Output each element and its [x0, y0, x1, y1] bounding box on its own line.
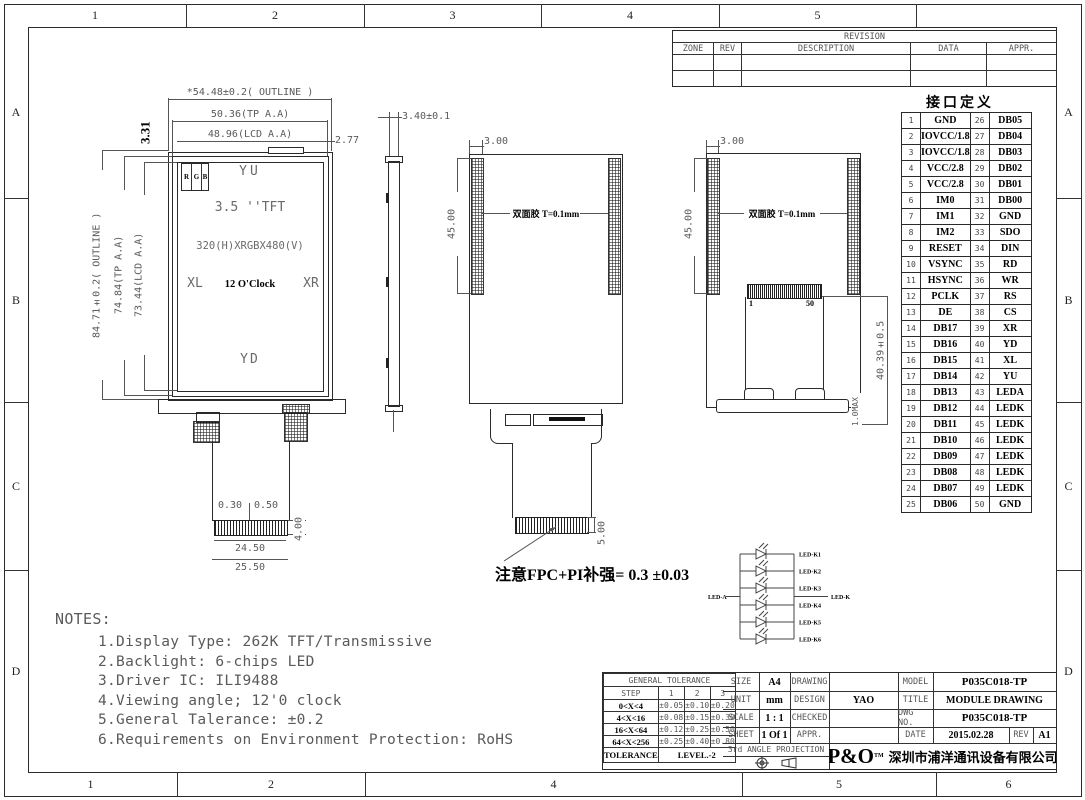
tolerance-value: ±0.08	[658, 712, 684, 724]
pin-name: IM0	[921, 193, 971, 209]
date-value: 2015.02.28	[933, 727, 1010, 744]
revision-col-zone: ZONE	[673, 43, 714, 54]
unit-value: mm	[759, 691, 791, 710]
back-a-gold-fingers	[515, 517, 589, 534]
zone-label: 4	[541, 4, 720, 27]
back-b-dim-top: 3.00	[720, 136, 744, 147]
leader-line	[820, 213, 847, 214]
zone-label: 5	[742, 772, 937, 796]
pin-name: DB06	[921, 497, 971, 513]
general-tolerance-table: GENERAL TOLERANCESTEP1230<X<4±0.05±0.10±…	[603, 673, 736, 763]
pin-row: 7IM132GND	[902, 209, 1032, 225]
pin-name: XR	[989, 321, 1031, 337]
ext-line	[144, 390, 177, 391]
pin-number: 41	[970, 353, 989, 369]
pin-number: 23	[902, 465, 921, 481]
dim-tp-width: 50.36(TP A.A)	[172, 109, 328, 120]
projection-symbols	[723, 756, 830, 769]
pin-number: 9	[902, 241, 921, 257]
notes-title: NOTES:	[55, 610, 111, 628]
pin-name: IM2	[921, 225, 971, 241]
pin-name: GND	[921, 113, 971, 129]
pin-name: DB01	[989, 177, 1031, 193]
tolerance-header: 2	[684, 687, 710, 700]
ext-line	[389, 112, 390, 156]
drawing-label: DRAWING	[790, 673, 830, 692]
rev-label: REV	[1009, 727, 1034, 744]
pin-name: DB11	[921, 417, 971, 433]
dim-line	[212, 559, 288, 560]
side-view-tick	[386, 358, 389, 368]
pin-number: 2	[902, 129, 921, 145]
led-k-label: LED-K2	[799, 570, 821, 576]
pin-row: 10VSYNC35RD	[902, 257, 1032, 273]
pin-row: 24DB0749LEDK	[902, 481, 1032, 497]
pin-name: GND	[989, 209, 1031, 225]
zone-label: B	[4, 198, 28, 403]
dwg-no-value: P035C018-TP	[933, 709, 1056, 728]
pin-number: 40	[970, 337, 989, 353]
back-b-bottom-bar	[716, 399, 849, 413]
pin-name: DB09	[921, 449, 971, 465]
pin-table: 1GND26DB052IOVCC/1.827DB043IOVCC/1.828DB…	[901, 112, 1032, 513]
tolerance-footer-label: TOLERANCE	[604, 748, 659, 763]
pin-number: 42	[970, 369, 989, 385]
pin-name: GND	[989, 497, 1031, 513]
pin-name: VSYNC	[921, 257, 971, 273]
revision-col-rev: REV	[714, 43, 742, 54]
pin-name: RD	[989, 257, 1031, 273]
ext-line	[822, 296, 888, 297]
pin-name: LEDA	[989, 385, 1031, 401]
zone-label: 2	[177, 772, 366, 796]
dim-line	[887, 296, 888, 424]
pin-name: DB13	[921, 385, 971, 401]
pin-name: LEDK	[989, 433, 1031, 449]
zone-label: 1	[4, 4, 187, 27]
revision-col-data: DATA	[911, 43, 987, 54]
leader-line	[580, 213, 608, 214]
pin-name: HSYNC	[921, 273, 971, 289]
note-item: 1.Display Type: 262K TFT/Transmissive	[98, 634, 432, 650]
pin-number: 38	[970, 305, 989, 321]
dwg-no-label: DWG NO.	[898, 709, 934, 728]
pin-name: DB04	[989, 129, 1031, 145]
back-b-dim-height: 40.39±0.5	[875, 310, 887, 390]
pin-number: 46	[970, 433, 989, 449]
ext-line	[457, 293, 471, 294]
back-a-tape-left	[471, 158, 484, 295]
pin-name: LEDK	[989, 449, 1031, 465]
pin-name: RS	[989, 289, 1031, 305]
led-k-label: LED-K4	[799, 604, 821, 610]
back-a-label-box-small	[505, 414, 531, 426]
pin-row: 3IOVCC/1.828DB03	[902, 145, 1032, 161]
tolerance-value: ±0.05	[658, 700, 684, 712]
pin-row: 1GND26DB05	[902, 113, 1032, 129]
zone-label	[916, 4, 1081, 27]
pin-number: 21	[902, 433, 921, 449]
title-value: MODULE DRAWING	[933, 691, 1056, 710]
pin-name: DIN	[989, 241, 1031, 257]
pin-number: 1	[902, 113, 921, 129]
zone-label: 3	[364, 4, 542, 27]
tolerance-value: ±0.12	[658, 724, 684, 736]
pin-name: LEDK	[989, 417, 1031, 433]
pin-number: 26	[970, 113, 989, 129]
tolerance-header: 1	[658, 687, 684, 700]
note-item: 2.Backlight: 6-chips LED	[98, 654, 315, 670]
pin-number: 13	[902, 305, 921, 321]
zone-label: C	[1056, 402, 1081, 571]
label-yu: YU	[170, 164, 330, 179]
pin-name: RESET	[921, 241, 971, 257]
zone-label: B	[1056, 198, 1081, 403]
pin-number: 49	[970, 481, 989, 497]
size-value: A4	[759, 673, 791, 692]
pin-number: 45	[970, 417, 989, 433]
pin-number: 43	[970, 385, 989, 401]
pin-name: DB12	[921, 401, 971, 417]
leader-line	[718, 213, 744, 214]
zone-label: 5	[719, 4, 917, 27]
dim-2550: 25.50	[212, 562, 288, 573]
pin-name: LEDK	[989, 465, 1031, 481]
back-b-fpc-body	[745, 297, 824, 397]
pin-name: DB05	[989, 113, 1031, 129]
pin-number: 17	[902, 369, 921, 385]
note-item: 5.General Talerance: ±0.2	[98, 712, 324, 728]
title-label: TITLE	[898, 691, 934, 710]
dim-lcd-width: 48.96(LCD A.A)	[177, 129, 323, 140]
tolerance-value: 4<X<16	[604, 712, 659, 724]
pin-number: 18	[902, 385, 921, 401]
pin-number: 30	[970, 177, 989, 193]
scale-label: SCALE	[723, 709, 760, 728]
pin-row: 9RESET34DIN	[902, 241, 1032, 257]
ext-line	[249, 503, 250, 520]
pin-number: 7	[902, 209, 921, 225]
led-anode-label: LED-A	[708, 595, 727, 601]
pin-number: 10	[902, 257, 921, 273]
model-value: P035C018-TP	[933, 673, 1056, 692]
pin-number: 29	[970, 161, 989, 177]
back-b-tape-right	[847, 158, 860, 295]
pin-name: VCC/2.8	[921, 177, 971, 193]
back-a-tail-narrow	[512, 443, 592, 518]
tolerance-value: 64<X<256	[604, 736, 659, 748]
led-backlight-circuit: LED-A LED-K LED-K1LED-K2LED-K3LED-K4LED-…	[700, 538, 850, 658]
fpc-note: 注意FPC+PI补强= 0.3 ±0.03	[495, 561, 689, 585]
revision-title: REVISION	[673, 31, 1056, 43]
dim-outline-height: 84.71±0.2( OUTLINE )	[91, 170, 103, 380]
ext-line	[331, 94, 332, 151]
sheet-label: SHEET	[723, 727, 760, 744]
pin-number: 14	[902, 321, 921, 337]
pin-row: 14DB1739XR	[902, 321, 1032, 337]
pin-name: DB00	[989, 193, 1031, 209]
tolerance-value: ±0.10	[684, 700, 710, 712]
pin-number: 4	[902, 161, 921, 177]
pin-number: 8	[902, 225, 921, 241]
zone-label: A	[4, 27, 28, 199]
ext-line	[457, 158, 471, 159]
zone-label: 1	[4, 772, 178, 796]
led-cathode-label: LED-K	[831, 595, 850, 601]
dim-lcd-height: 73.44(LCD A.A)	[133, 195, 145, 355]
note-item: 6.Requirements on Environment Protection…	[98, 732, 513, 748]
ext-line	[144, 162, 177, 163]
pin-row: 2IOVCC/1.827DB04	[902, 129, 1032, 145]
pin-row: 21DB1046LEDK	[902, 433, 1032, 449]
dim-right-margin: 2.77	[335, 135, 359, 146]
fpc-right-component	[284, 412, 308, 442]
dim-050: 0.50	[254, 500, 278, 511]
engineering-drawing-sheet: 12345 12456 ABCD ABCD REVISION ZONE REV …	[0, 0, 1085, 800]
pin-name: SDO	[989, 225, 1031, 241]
company-name: 深圳市浦洋通讯设备有限公司	[889, 747, 1056, 766]
pin-row: 15DB1640YD	[902, 337, 1032, 353]
side-view-wire	[393, 410, 394, 432]
pin-name: DB14	[921, 369, 971, 385]
pin-row: 17DB1442YU	[902, 369, 1032, 385]
pin-row: 25DB0650GND	[902, 497, 1032, 513]
ext-line	[124, 395, 172, 396]
pin-row: 18DB1343LEDA	[902, 385, 1032, 401]
dim-2450: 24.50	[214, 543, 286, 554]
dim-030: 0.30	[218, 500, 242, 511]
pin-number: 44	[970, 401, 989, 417]
back-b-tape-left	[707, 158, 720, 295]
pin-row: 22DB0947LEDK	[902, 449, 1032, 465]
tolerance-header: STEP	[604, 687, 659, 700]
ext-line	[694, 158, 707, 159]
back-b-tape-label: 双面胶 T=0.1mm	[744, 207, 820, 220]
side-view-bottom-cap	[385, 405, 403, 412]
ext-line	[482, 140, 483, 154]
zone-label: 6	[936, 772, 1081, 796]
design-label: DESIGN	[790, 691, 830, 710]
label-resolution: 320(H)XRGBX480(V)	[170, 240, 330, 252]
pin-name: VCC/2.8	[921, 161, 971, 177]
revision-col-appr: APPR.	[987, 43, 1056, 54]
tolerance-value: ±0.25	[658, 736, 684, 748]
back-a-tape-label: 双面胶 T=0.1mm	[508, 207, 584, 220]
pin-row: 4VCC/2.829DB02	[902, 161, 1032, 177]
pin-name: YU	[989, 369, 1031, 385]
pin-row: 6IM031DB00	[902, 193, 1032, 209]
pin-number: 11	[902, 273, 921, 289]
zone-label: C	[4, 402, 28, 571]
pin-number: 34	[970, 241, 989, 257]
pin-name: PCLK	[921, 289, 971, 305]
pin-row: 23DB0848LEDK	[902, 465, 1032, 481]
pin-number: 19	[902, 401, 921, 417]
front-bottom-piece	[158, 399, 346, 414]
revision-table: REVISION ZONE REV DESCRIPTION DATA APPR.	[672, 30, 1057, 87]
label-xl: XL	[182, 276, 208, 291]
dim-outline-width: *54.48±0.2( OUTLINE )	[168, 87, 332, 98]
zone-label: 2	[186, 4, 365, 27]
back-b-dim-max: 1.0MAX	[851, 393, 862, 431]
revision-col-description: DESCRIPTION	[742, 43, 911, 54]
pin-name: DB02	[989, 161, 1031, 177]
pin-row: 12PCLK37RS	[902, 289, 1032, 305]
back-a-outline	[469, 154, 623, 404]
note-item: 3.Driver IC: ILI9488	[98, 673, 279, 689]
fpc-gold-fingers	[214, 520, 288, 536]
pin-row: 13DE38CS	[902, 305, 1032, 321]
led-k-label: LED-K1	[799, 553, 821, 559]
zone-label: D	[1056, 570, 1081, 772]
back-a-label-text-bar	[549, 417, 585, 421]
side-view-tick	[386, 277, 389, 287]
size-label: SIZE	[723, 673, 760, 692]
pin-number: 33	[970, 225, 989, 241]
pin-row: 19DB1244LEDK	[902, 401, 1032, 417]
pin-row: 20DB1145LEDK	[902, 417, 1032, 433]
scale-value: 1 : 1	[759, 709, 791, 728]
label-xr: XR	[298, 276, 324, 291]
pin-name: DB07	[921, 481, 971, 497]
ext-line	[398, 112, 399, 156]
tolerance-value: 0<X<4	[604, 700, 659, 712]
label-display-type: 3.5 ''TFT	[170, 200, 330, 215]
dim-line	[172, 121, 328, 122]
note-item: 4.Viewing angle; 12'0 clock	[98, 693, 342, 709]
pin-name: IOVCC/1.8	[921, 145, 971, 161]
ext-line	[124, 156, 172, 157]
dim-thickness: 3.40±0.1	[402, 111, 450, 122]
pin-name: WR	[989, 273, 1031, 289]
projection-label: 3rd ANGLE PROJECTION	[723, 743, 830, 757]
pin-number: 15	[902, 337, 921, 353]
pin-number: 48	[970, 465, 989, 481]
zone-label: 4	[365, 772, 743, 796]
pin-number: 39	[970, 321, 989, 337]
pin-number: 50	[970, 497, 989, 513]
pin-name: XL	[989, 353, 1031, 369]
pin-number: 28	[970, 145, 989, 161]
pin-name: DB15	[921, 353, 971, 369]
pin-number: 16	[902, 353, 921, 369]
dim-line	[594, 517, 595, 532]
ext-line	[862, 424, 888, 425]
pin-row: 16DB1541XL	[902, 353, 1032, 369]
general-tolerance-title: GENERAL TOLERANCE	[604, 674, 736, 687]
trademark-mark: TM	[874, 753, 884, 759]
led-k-label: LED-K6	[799, 638, 821, 644]
fpc-left-component	[193, 421, 220, 443]
pin-number: 31	[970, 193, 989, 209]
tolerance-value: 16<X<64	[604, 724, 659, 736]
title-block: GENERAL TOLERANCESTEP1230<X<4±0.05±0.10±…	[602, 672, 1057, 770]
pin-number: 25	[902, 497, 921, 513]
pin-name: DB16	[921, 337, 971, 353]
pin-name: LEDK	[989, 401, 1031, 417]
pin-number: 24	[902, 481, 921, 497]
ext-line	[469, 140, 470, 154]
date-label: DATE	[898, 727, 934, 744]
pin-name: DB03	[989, 145, 1031, 161]
pin-number: 3	[902, 145, 921, 161]
back-b-dim-left: 45.00	[683, 192, 695, 256]
side-view-body	[388, 161, 400, 407]
company-logo: P&O	[829, 744, 874, 769]
pin-number: 6	[902, 193, 921, 209]
ext-line	[694, 293, 707, 294]
pin-table-title: 接口定义	[901, 92, 1019, 112]
pin-name: DB10	[921, 433, 971, 449]
pin-name: LEDK	[989, 481, 1031, 497]
pin-name: YD	[989, 337, 1031, 353]
ext-line	[327, 116, 328, 156]
pin-number: 32	[970, 209, 989, 225]
dim-line	[214, 540, 286, 541]
rev-value: A1	[1033, 727, 1056, 744]
dim-400: 4.00	[293, 512, 305, 546]
dim-line	[177, 141, 323, 142]
label-yd: YD	[170, 352, 330, 367]
tolerance-value: ±0.15	[684, 712, 710, 724]
pin-number: 20	[902, 417, 921, 433]
checked-label: CHECKED	[790, 709, 830, 728]
sheet-value: 1 Of 1	[759, 727, 791, 744]
led-k-label: LED-K5	[799, 621, 821, 627]
dim-line	[168, 99, 332, 100]
cone-symbol	[782, 758, 796, 768]
pin-name: CS	[989, 305, 1031, 321]
pin-number: 22	[902, 449, 921, 465]
pin-number: 37	[970, 289, 989, 305]
back-a-dim-top: 3.00	[484, 136, 508, 147]
pin-name: DB08	[921, 465, 971, 481]
unit-label: UNIT	[723, 691, 760, 710]
pin-name: DB17	[921, 321, 971, 337]
tolerance-value: ±0.40	[684, 736, 710, 748]
pin-number: 36	[970, 273, 989, 289]
ext-line	[168, 94, 169, 151]
leader-line	[482, 213, 510, 214]
ext-line	[172, 116, 173, 156]
label-clock: 12 O'Clock	[220, 279, 280, 290]
back-a-dim-gold: 5.00	[596, 516, 608, 550]
side-view-tick	[386, 193, 389, 203]
company-cell: P&OTM 深圳市浦洋通讯设备有限公司	[829, 743, 1056, 769]
front-view-top-bump	[268, 147, 304, 154]
pin-name: DE	[921, 305, 971, 321]
pin-row: 5VCC/2.830DB01	[902, 177, 1032, 193]
back-a-dim-left: 45.00	[446, 192, 458, 256]
zone-label: A	[1056, 27, 1081, 199]
ext-line	[102, 150, 168, 151]
first-angle-symbol	[755, 757, 769, 769]
pin-number: 47	[970, 449, 989, 465]
model-label: MODEL	[898, 673, 934, 692]
pin-row: 11HSYNC36WR	[902, 273, 1032, 289]
appr-label: APPR.	[790, 727, 830, 744]
dim-tp-height: 74.84(TP A.A)	[113, 190, 125, 360]
pin-number: 12	[902, 289, 921, 305]
zone-label: D	[4, 570, 28, 772]
pin-name: IM1	[921, 209, 971, 225]
tolerance-value: ±0.25	[684, 724, 710, 736]
led-k-label: LED-K3	[799, 587, 821, 593]
pin-number: 27	[970, 129, 989, 145]
back-a-tape-right	[608, 158, 621, 295]
design-value: YAO	[829, 691, 899, 710]
pin-number: 35	[970, 257, 989, 273]
